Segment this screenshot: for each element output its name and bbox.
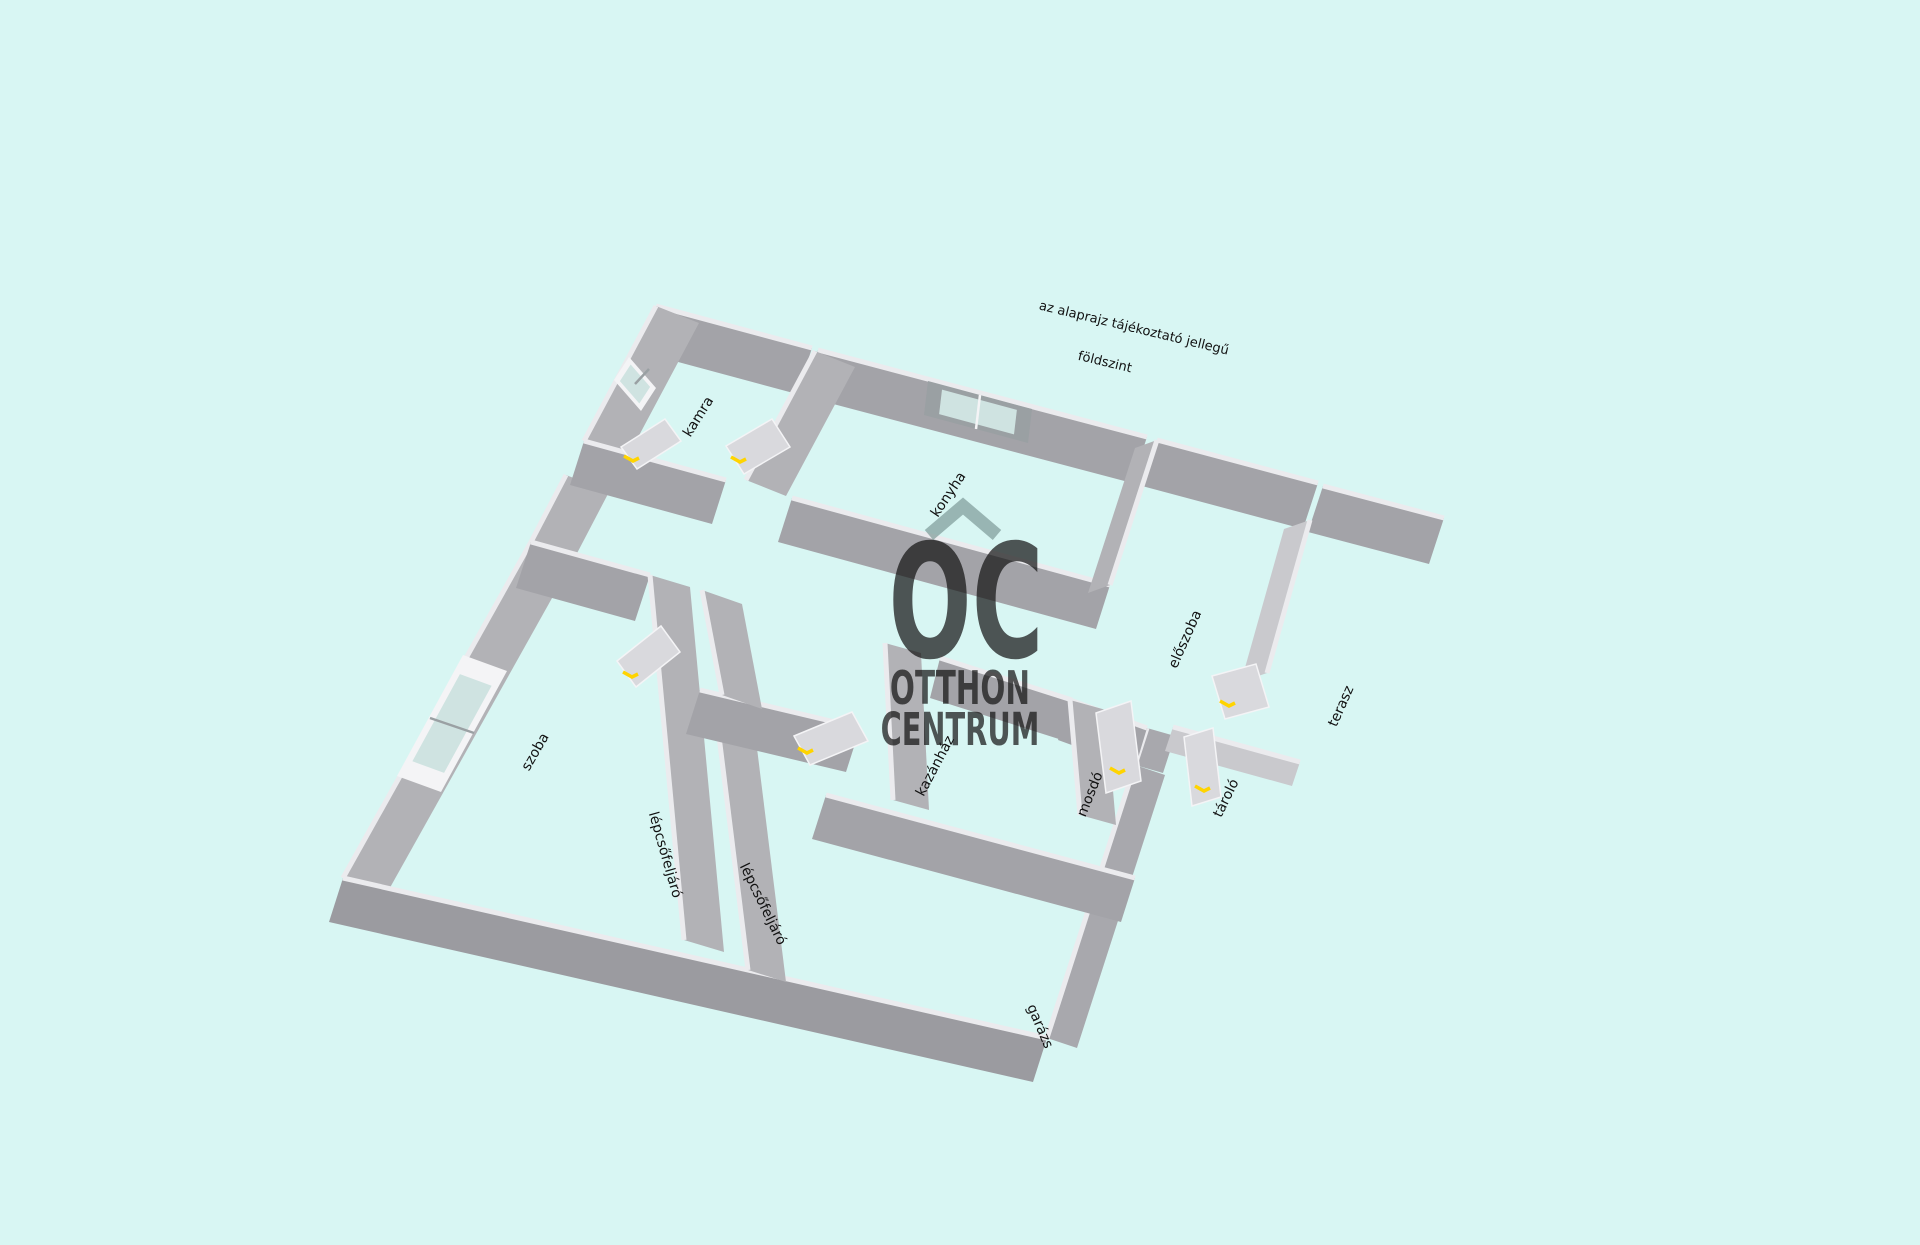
watermark-line2: CENTRUM: [881, 703, 1040, 755]
watermark-otthon-centrum: OC OTTHON CENTRUM: [881, 506, 1044, 756]
floor-plan-drawing: OC OTTHON CENTRUM kamrakonyhaelőszobater…: [0, 0, 1920, 1245]
floor-plan-page: OC OTTHON CENTRUM kamrakonyhaelőszobater…: [0, 0, 1920, 1245]
